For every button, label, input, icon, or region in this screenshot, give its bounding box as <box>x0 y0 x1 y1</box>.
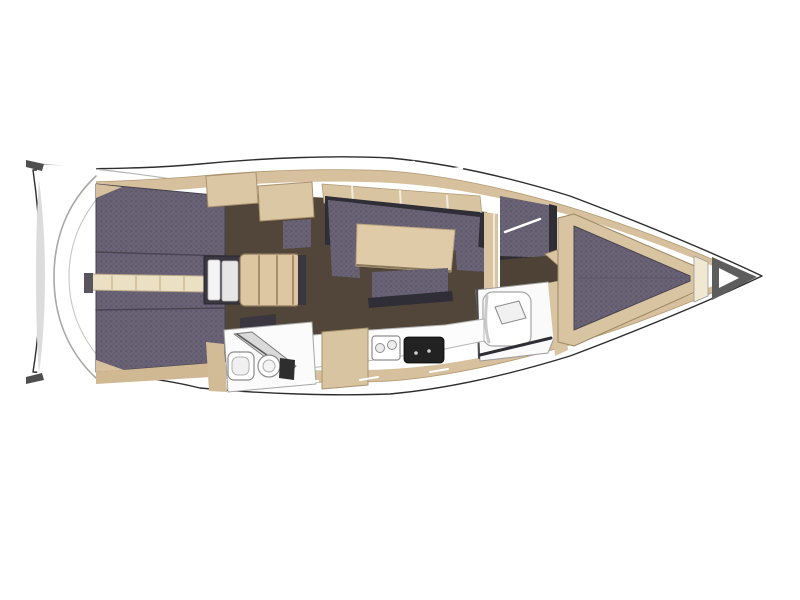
aft-head-wall <box>206 342 227 392</box>
galley-stove-knob-2 <box>427 349 431 353</box>
aft-head-sink-bowl <box>232 357 249 375</box>
boat-floor-plan <box>0 0 800 600</box>
companionway-threshold-bar <box>298 255 306 305</box>
salon-sofa-left-arm <box>328 200 360 278</box>
coachroof-locker-aft <box>206 172 258 207</box>
companionway-door-panel-right <box>222 261 238 301</box>
companionway-steps <box>240 254 300 306</box>
coachroof-locker-fwd <box>258 182 314 221</box>
cockpit-walkway <box>86 274 205 292</box>
aft-head-toilet-bowl <box>263 360 275 372</box>
galley-stove <box>404 337 444 363</box>
walkway-end-bracket <box>84 273 93 293</box>
aft-head-toilet-tank <box>279 358 295 380</box>
galley-sink-bowl-left <box>376 344 385 353</box>
galley-sink-bowl-right <box>388 341 397 350</box>
companionway-door-panel-left <box>208 260 220 300</box>
salon-table <box>356 224 455 272</box>
fwd-cabin-berth-cushion <box>500 196 553 260</box>
bow-locker-band <box>694 256 708 302</box>
boat-floor-plan-svg <box>0 0 800 600</box>
galley-stove-knob-1 <box>414 351 418 355</box>
aft-cabin-cushion-patch <box>283 219 311 249</box>
